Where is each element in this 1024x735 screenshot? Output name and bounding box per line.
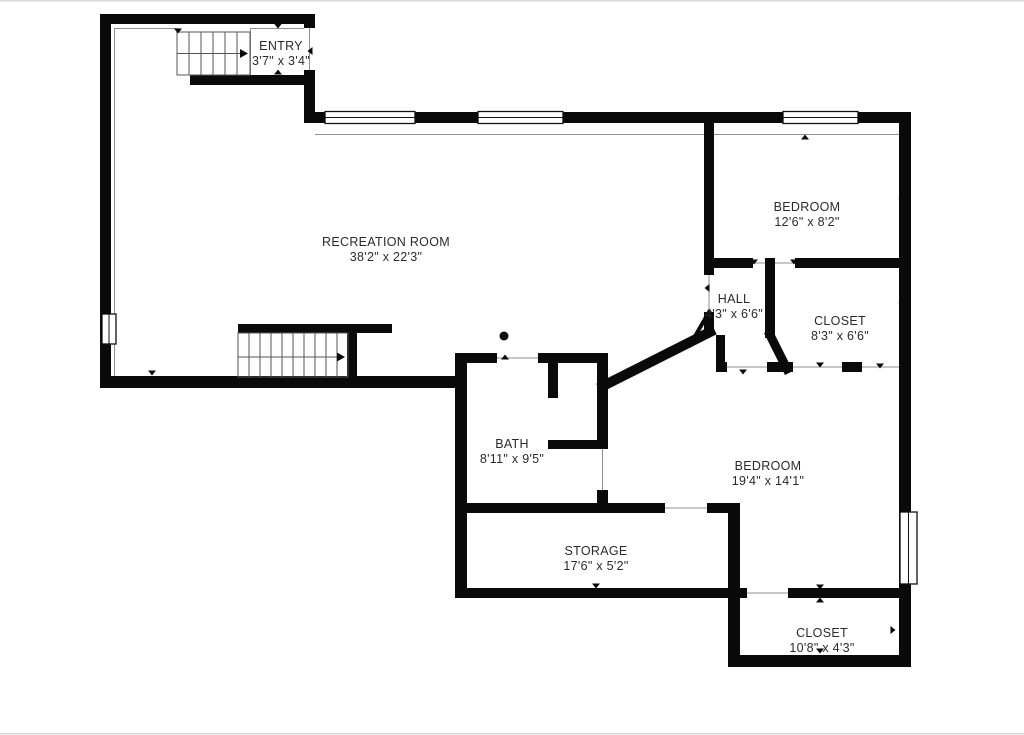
room-dims: 12'6" x 8'2" [774, 215, 841, 230]
room-label-bath: BATH 8'11" x 9'5" [480, 437, 544, 467]
lower-staircase [238, 333, 348, 377]
room-label-closet-upper: CLOSET 8'3" x 6'6" [811, 314, 869, 344]
room-name: BATH [480, 437, 544, 452]
room-name: CLOSET [811, 314, 869, 329]
room-name: BEDROOM [732, 459, 804, 474]
windows [102, 112, 917, 585]
wall-segment [842, 362, 862, 372]
wall-segment [728, 503, 740, 667]
stair-direction-arrow [240, 49, 248, 58]
wall-segment [704, 258, 753, 268]
wall-segment [455, 503, 665, 513]
wall-segment [190, 75, 315, 85]
room-dims: 8'3" x 6'6" [811, 329, 869, 344]
opening-tick [876, 364, 884, 369]
wall-segment [795, 258, 904, 268]
room-name: BEDROOM [774, 200, 841, 215]
wall-segment [304, 14, 315, 28]
room-label-closet-lower: CLOSET 10'8" x 4'3" [789, 626, 854, 656]
room-dims: 4'3" x 6'6" [705, 307, 763, 322]
room-name: CLOSET [789, 626, 854, 641]
wall-segment [238, 324, 392, 333]
interior-walls [238, 112, 904, 513]
window-icon [783, 112, 858, 124]
room-dims: 38'2" x 22'3" [322, 250, 450, 265]
opening-tick [891, 626, 896, 634]
upper-staircase [177, 32, 250, 75]
wall-segment [548, 353, 558, 398]
wall-segment [707, 503, 738, 513]
room-dims: 17'6" x 5'2" [563, 559, 628, 574]
window-icon [102, 314, 116, 344]
wall-segment [716, 362, 727, 372]
wall-segment [100, 14, 315, 24]
opening-tick [592, 584, 600, 589]
fixture-dot [500, 332, 509, 341]
opening-tick [801, 135, 809, 140]
room-label-bedroom-upper: BEDROOM 12'6" x 8'2" [774, 200, 841, 230]
wall-segment [455, 588, 747, 598]
opening-tick [816, 598, 824, 603]
floor-plan-drawing [0, 0, 1024, 735]
wall-segment [728, 655, 911, 667]
wall-segment [765, 258, 775, 338]
room-dims: 3'7" x 3'4" [252, 54, 310, 69]
room-label-bedroom-lower: BEDROOM 19'4" x 14'1" [732, 459, 804, 489]
wall-segment [455, 353, 467, 598]
wall-segment [597, 390, 608, 449]
wall-segment [788, 588, 906, 598]
opening-tick [274, 70, 282, 75]
room-name: STORAGE [563, 544, 628, 559]
room-label-recreation-room: RECREATION ROOM 38'2" x 22'3" [322, 235, 450, 265]
room-name: ENTRY [252, 39, 310, 54]
room-name: RECREATION ROOM [322, 235, 450, 250]
window-icon [478, 112, 563, 124]
opening-tick [174, 29, 182, 34]
page-bottom-line [0, 733, 1024, 735]
opening-tick [705, 284, 710, 292]
opening-tick [274, 24, 282, 29]
window-icon [900, 512, 917, 584]
room-label-entry: ENTRY 3'7" x 3'4" [252, 39, 310, 69]
wall-segment [100, 376, 465, 388]
opening-tick [739, 370, 747, 375]
room-label-hall: HALL 4'3" x 6'6" [705, 292, 763, 322]
opening-tick [501, 355, 509, 360]
wall-segment [455, 353, 497, 363]
window-icon [325, 112, 415, 124]
room-name: HALL [705, 292, 763, 307]
room-label-storage: STORAGE 17'6" x 5'2" [563, 544, 628, 574]
page-top-line [0, 0, 1024, 2]
stair-direction-arrow [337, 353, 345, 362]
room-dims: 19'4" x 14'1" [732, 474, 804, 489]
opening-tick [148, 371, 156, 376]
wall-segment [704, 112, 714, 275]
room-dims: 10'8" x 4'3" [789, 641, 854, 656]
floor-plan: ENTRY 3'7" x 3'4" RECREATION ROOM 38'2" … [0, 0, 1024, 735]
room-dims: 8'11" x 9'5" [480, 452, 544, 467]
